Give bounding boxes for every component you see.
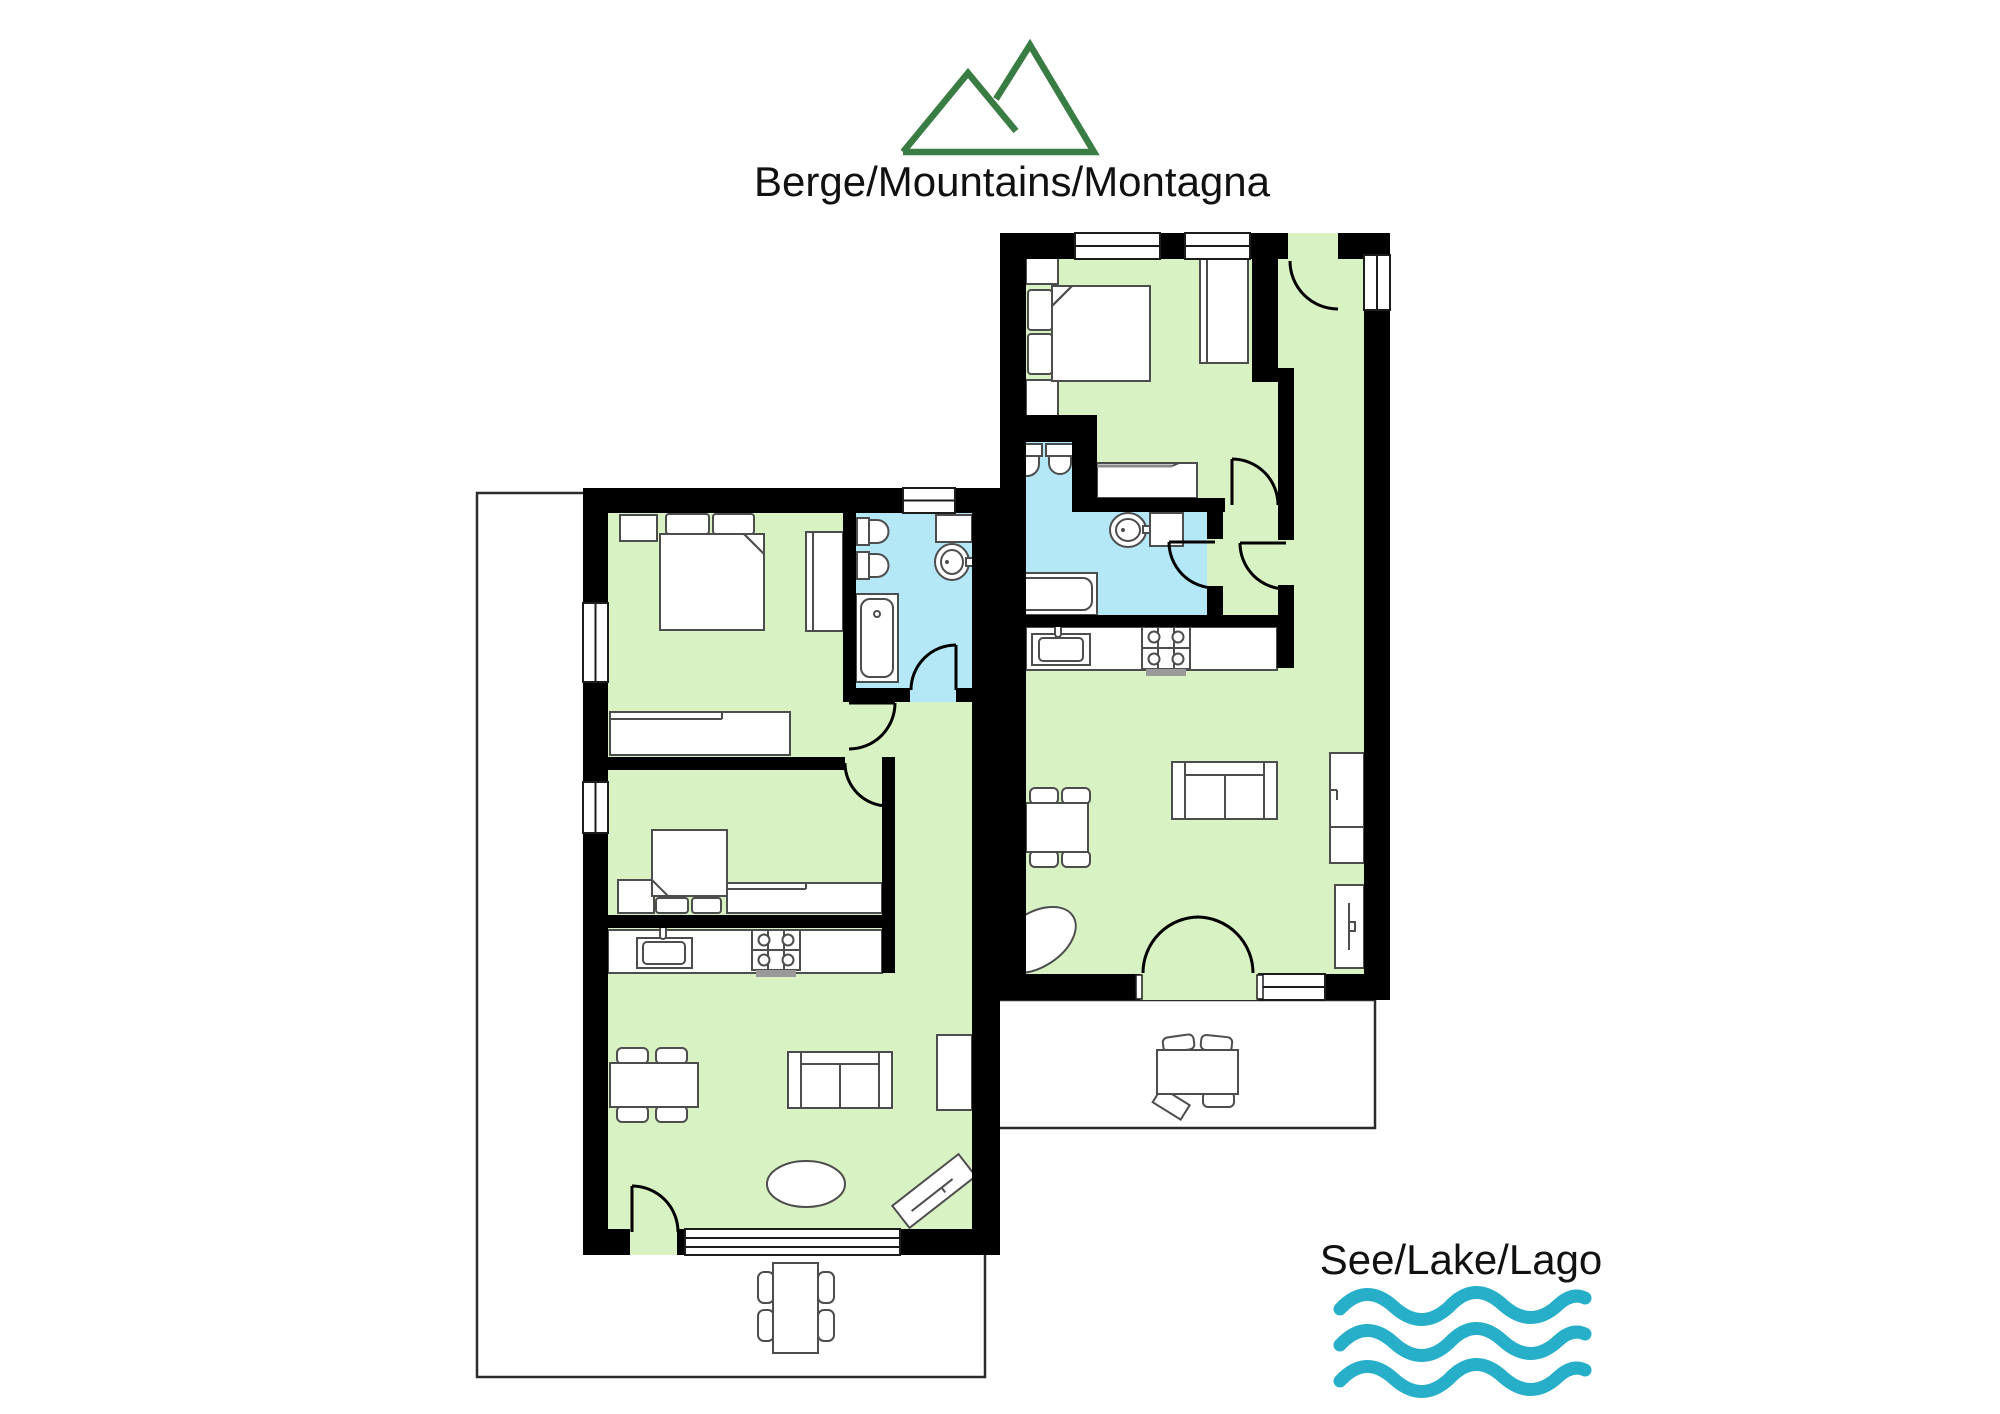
nightstand [620, 515, 657, 541]
wardrobe [1200, 250, 1248, 363]
kitchen-counter-left-apartment [608, 925, 882, 977]
door-jamb [1257, 975, 1263, 999]
stove [1142, 627, 1190, 676]
dressing-counter [1097, 463, 1197, 498]
dining-table-right-apartment [1026, 788, 1090, 867]
window-top-wall-left-apartment [903, 488, 955, 513]
bidet [857, 552, 889, 579]
kitchen-counter-right-apartment [1026, 623, 1277, 676]
shelf-cabinet [937, 1035, 972, 1110]
mountain-icon [903, 45, 1094, 152]
floorplan-page: Berge/Mountains/Montagna See/Lake/Lago [0, 0, 2000, 1414]
radiator-cabinet [1335, 885, 1364, 968]
door-jamb [1136, 975, 1142, 999]
window-living-room-right-apartment [1259, 974, 1325, 1000]
side-cabinet [1330, 827, 1364, 863]
sideboard [610, 712, 790, 755]
sofa-right-apartment [1172, 762, 1277, 819]
nightstand [618, 880, 654, 913]
rug [767, 1161, 845, 1207]
toilet [857, 518, 889, 545]
window-right-wall [1364, 255, 1390, 310]
wardrobe [806, 532, 843, 631]
desk [727, 883, 882, 913]
mountains-label: Berge/Mountains/Montagna [754, 158, 1271, 205]
window-living-room-left-apartment [685, 1229, 900, 1255]
window-left-wall-bedroom [583, 603, 608, 682]
bidet [1046, 444, 1074, 474]
window-top-wall-right-apartment [1185, 233, 1250, 259]
stove [752, 930, 800, 977]
bathtub-left-apartment [856, 594, 898, 682]
waves-icon [1340, 1292, 1585, 1391]
window-top-wall-bedroom-right [1075, 233, 1160, 259]
bathroom-cabinet [936, 515, 972, 542]
window-left-wall-kidsroom [583, 782, 608, 833]
lake-label: See/Lake/Lago [1320, 1236, 1603, 1283]
tall-cabinet [1330, 753, 1364, 827]
sofa-left-apartment [788, 1052, 892, 1108]
floorplan-canvas: Berge/Mountains/Montagna See/Lake/Lago [0, 0, 2000, 1414]
double-bed-right-apartment [1028, 286, 1150, 381]
